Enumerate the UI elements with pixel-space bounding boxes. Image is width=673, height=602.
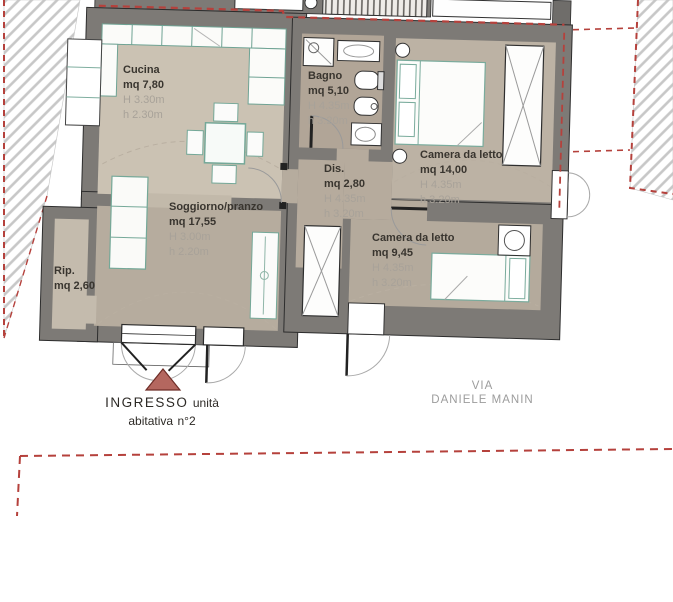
room-H: H 4.35m [372,261,455,276]
room-area: mq 17,55 [169,215,263,230]
room-name: Dis. [324,162,366,177]
sofa-shelf [109,176,148,269]
street-label: VIA DANIELE MANIN [405,379,560,407]
entrance-unit-number: n°2 [178,414,196,428]
room-h: h 3.20m [372,276,455,291]
nightstand-lamp-top [395,43,409,57]
apartment-unit [38,0,595,393]
room-name: Camera da letto [372,231,455,246]
street-line1: VIA [405,379,560,393]
room-area: mq 7,80 [123,78,165,93]
room-H: H 3.00m [169,230,263,245]
room-name: Rip. [54,264,95,279]
label-bagno: Bagno mq 5,10 H 4.35m h 3.20m [308,69,350,129]
room-name: Bagno [308,69,350,84]
entrance-label: INGRESSO unità abitativa n°2 [82,394,242,430]
door-right-wall [551,170,590,219]
label-rip: Rip. mq 2,60 [54,264,95,294]
label-soggiorno: Soggiorno/pranzo mq 17,55 H 3.00m h 2.20… [169,200,263,260]
toilet [355,71,384,90]
room-H: H 3.30m [123,93,165,108]
room-H: H 4.35m [324,192,366,207]
room-h: h 3.20m [420,193,503,208]
label-camera-da-letto-2: Camera da letto mq 9,45 H 4.35m h 3.20m [372,231,455,291]
room-h: h 2.30m [123,108,165,123]
label-dis: Dis. mq 2,80 H 4.35m h 3.20m [324,162,366,222]
room-name: Cucina [123,63,165,78]
wardrobe-bed1 [502,45,543,166]
property-boundary-line [17,449,673,516]
shower [303,37,334,66]
hatch-area-right [562,0,673,200]
room-h: h 3.20m [308,114,350,129]
double-bed [395,60,485,146]
room-h: h 3.20m [324,207,366,222]
label-cucina: Cucina mq 7,80 H 3.30m h 2.30m [123,63,165,123]
washbasin [351,123,382,146]
room-area: mq 2,60 [54,279,95,294]
label-camera-da-letto-1: Camera da letto mq 14,00 H 4.35m h 3.20m [420,148,503,208]
room-area: mq 14,00 [420,163,503,178]
room-H: H 4.35m [420,178,503,193]
wardrobe-bed2 [302,226,340,317]
bidet [354,97,378,116]
room-floor-rip-opening [84,295,97,323]
room-h: h 2.20m [169,245,263,260]
room-area: mq 2,80 [324,177,366,192]
door-corridor-exterior [347,303,391,377]
room-name: Soggiorno/pranzo [169,200,263,215]
floorplan-canvas: Cucina mq 7,80 H 3.30m h 2.30m Bagno mq … [0,0,673,602]
room-area: mq 9,45 [372,246,455,261]
street-line2: DANIELE MANIN [405,393,560,407]
nightstand-lamp-bottom [393,149,407,163]
entrance-title: INGRESSO [105,395,188,410]
bathroom-sink [337,40,380,61]
kitchen-window [65,39,101,126]
room-area: mq 5,10 [308,84,350,99]
room-H: H 4.35m [308,99,350,114]
room-name: Camera da letto [420,148,503,163]
nightstand-bed2 [498,225,531,256]
